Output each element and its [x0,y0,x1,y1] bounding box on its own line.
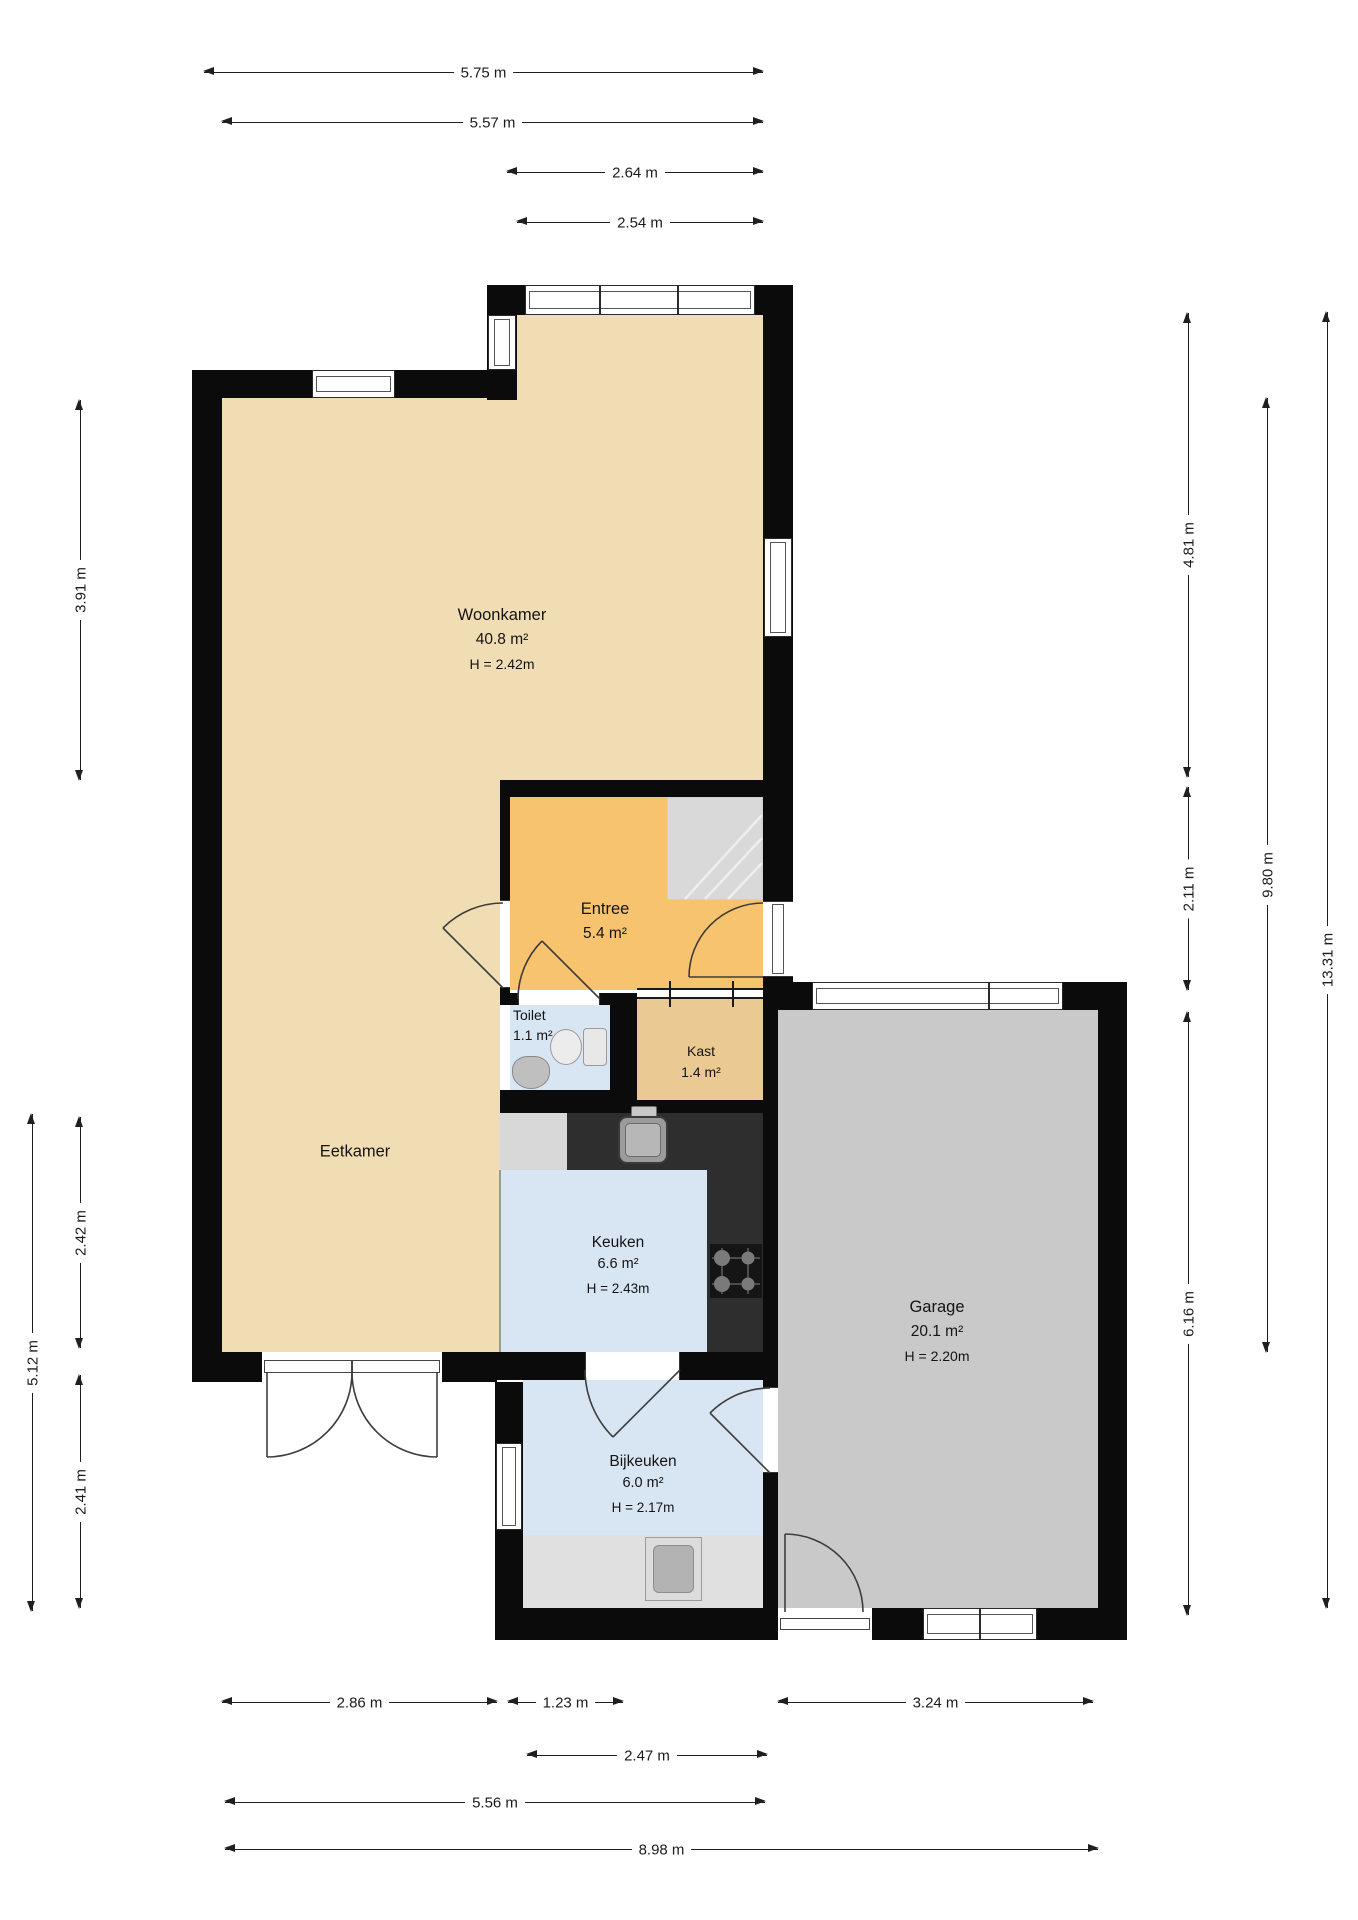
window-mullion [979,1609,981,1639]
label-woonkamer: Woonkamer 40.8 m² H = 2.42m [458,603,547,675]
room-name: Toilet [513,1006,553,1026]
label-entree: Entree 5.4 m² [581,897,630,945]
room-ceiling: H = 2.20m [905,1346,970,1367]
kast-sliding-door [637,988,763,999]
label-bijkeuken: Bijkeuken 6.0 m² H = 2.17m [609,1450,676,1518]
wall-toilet-kast [610,1005,637,1100]
toilet-cistern [583,1028,607,1066]
dimension-bottom-6: 8.98 m [225,1849,1098,1850]
door-opening-keuken-bijkeuken [585,1352,680,1380]
french-door-mullion [351,1360,353,1373]
dimension-label: 3.24 m [906,1695,966,1712]
room-area: 1.4 m² [681,1062,721,1083]
door-opening-bijkeuken-garage [763,1387,778,1473]
dimension-label: 2.11 m [1181,859,1198,918]
room-area: 5.4 m² [581,922,630,945]
dimension-right-5: 13.31 m [1327,312,1328,1608]
front-door-opening [763,901,793,977]
dimension-top-4: 2.54 m [517,222,763,223]
dimension-label: 2.54 m [610,215,670,232]
dimension-label: 1.23 m [536,1695,596,1712]
dimension-bottom-5: 5.56 m [225,1802,765,1803]
room-name: Bijkeuken [609,1450,676,1473]
washing-machine-icon [645,1537,702,1601]
room-area: 20.1 m² [905,1320,970,1343]
dimension-right-1: 4.81 m [1188,313,1189,777]
room-ceiling: H = 2.17m [609,1498,676,1518]
room-name: Eetkamer [320,1140,391,1165]
window-mullion [677,286,679,314]
dimension-label: 5.12 m [25,1333,42,1393]
dimension-label: 2.41 m [73,1462,90,1522]
window-mullion [988,983,990,1009]
dimension-left-1: 3.91 m [80,400,81,780]
door-opening-toilet [518,993,600,1005]
wall-left [192,398,222,1382]
dimension-bottom-3: 3.24 m [778,1702,1093,1703]
front-door-frame [772,904,784,974]
room-ceiling: H = 2.43m [587,1279,650,1299]
window-pane [816,988,1059,1004]
dimension-top-1: 5.75 m [204,72,763,73]
label-eetkamer: Eetkamer [320,1140,391,1165]
garage-door-frame [780,1618,870,1630]
window-woonkamer-right [764,538,792,637]
dimension-left-3: 2.41 m [80,1375,81,1608]
window-bay-top [525,285,755,315]
door-opening-woonkamer-entree [500,900,510,988]
keuken-floor-divider [499,1170,501,1352]
french-door-opening [262,1352,442,1382]
kitchen-cabinet [500,1113,567,1170]
window-pane [502,1447,516,1526]
label-garage: Garage 20.1 m² H = 2.20m [905,1295,970,1367]
floorplan-canvas: Woonkamer 40.8 m² H = 2.42m Entree 5.4 m… [0,0,1358,1920]
room-area: 40.8 m² [458,628,547,651]
garage-side-door-opening [778,1608,872,1640]
label-toilet: Toilet 1.1 m² [513,1006,553,1045]
dimension-bottom-1: 2.86 m [222,1702,497,1703]
dimension-label: 3.91 m [73,560,90,620]
wall-garage-right [1098,1010,1127,1640]
dimension-bottom-2: 1.23 m [508,1702,623,1703]
dimension-label: 13.31 m [1320,926,1337,994]
room-name: Garage [905,1295,970,1320]
stairs-icon [667,797,763,900]
window-pane [494,319,510,366]
washbasin-icon [512,1056,550,1089]
kitchen-sink-icon [618,1116,668,1164]
wall-entree-top [500,780,793,797]
label-keuken: Keuken 6.6 m² H = 2.43m [587,1231,650,1299]
room-name: Woonkamer [458,603,547,628]
toilet-icon [550,1029,582,1065]
dimension-label: 4.81 m [1181,515,1198,575]
label-kast: Kast 1.4 m² [681,1041,721,1083]
dimension-label: 5.56 m [465,1795,525,1812]
dimension-label: 2.47 m [617,1748,677,1765]
room-area: 1.1 m² [513,1026,553,1046]
window-pane [770,542,786,633]
dimension-label: 2.86 m [330,1695,390,1712]
room-area: 6.6 m² [587,1254,650,1276]
room-name: Kast [681,1041,721,1062]
dimension-label: 6.16 m [1181,1284,1198,1344]
wall-garage-left [763,1010,778,1610]
window-mullion [599,286,601,314]
window-bay-left [488,315,516,370]
stove-icon [710,1244,762,1298]
kitchen-counter-column [707,1113,763,1352]
room-name: Keuken [587,1231,650,1254]
dimension-left-4: 5.12 m [32,1114,33,1611]
window-bijkeuken-left [496,1443,522,1530]
dimension-left-2: 2.42 m [80,1117,81,1348]
dimension-top-2: 5.57 m [222,122,763,123]
dimension-label: 5.57 m [463,115,523,132]
window-garage-bottom [923,1608,1037,1640]
dimension-label: 8.98 m [632,1842,692,1859]
dimension-bottom-4: 2.47 m [527,1755,767,1756]
bijkeuken-appliance-zone [523,1535,763,1608]
room-eetkamer-floor [222,780,500,1360]
dimension-right-2: 2.11 m [1188,787,1189,990]
dimension-label: 2.42 m [73,1203,90,1263]
room-name: Entree [581,897,630,922]
window-garage-top [812,982,1063,1010]
door-arc-french-right [352,1372,437,1457]
dimension-top-3: 2.64 m [507,172,763,173]
wall-toilet-bottom [500,1090,637,1113]
dimension-right-3: 6.16 m [1188,1012,1189,1615]
dimension-label: 5.75 m [454,65,514,82]
room-woonkamer-floor-main [222,390,763,780]
window-main-top [312,370,395,398]
dimension-label: 2.64 m [605,165,665,182]
door-arc-french-left [267,1372,352,1457]
room-ceiling: H = 2.42m [458,654,547,675]
window-pane [529,291,751,309]
window-pane [316,376,391,392]
dimension-label: 9.80 m [1260,845,1277,905]
dimension-right-4: 9.80 m [1267,398,1268,1352]
room-area: 6.0 m² [609,1473,676,1495]
